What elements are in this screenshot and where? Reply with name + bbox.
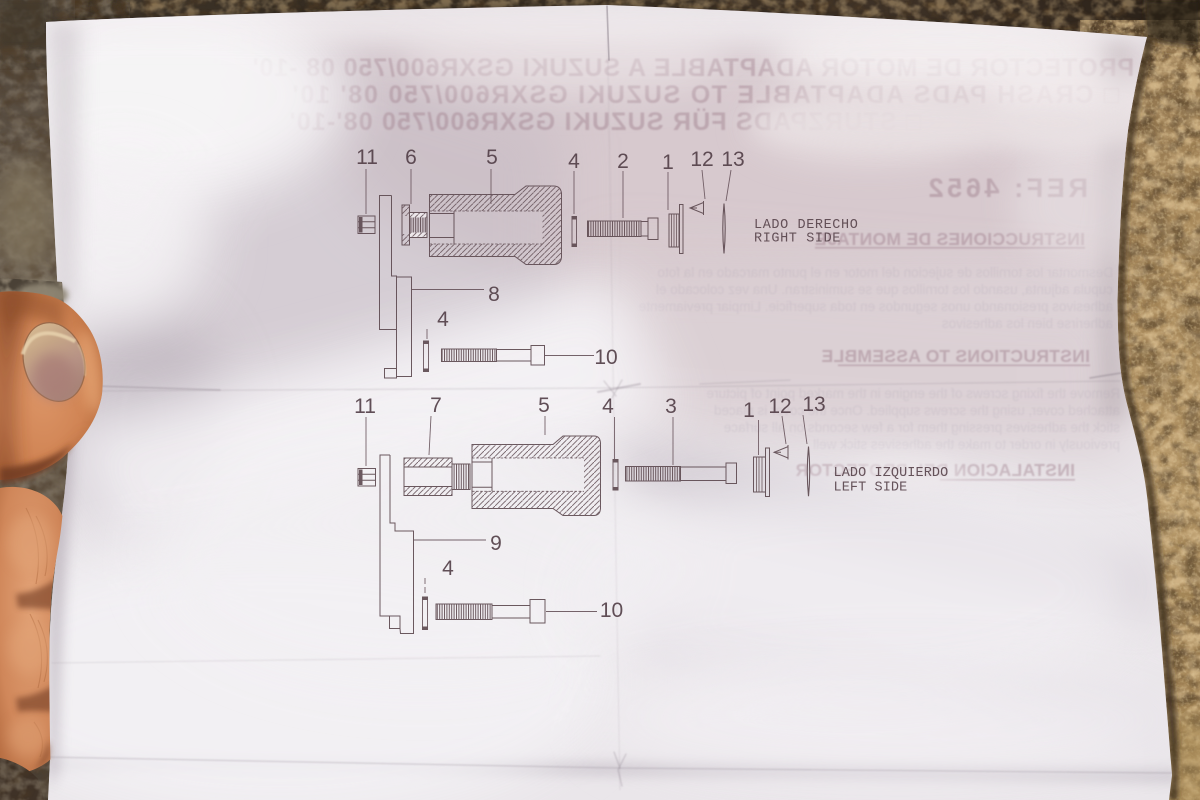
svg-text:4: 4 <box>602 395 614 418</box>
svg-text:RIGHT SIDE: RIGHT SIDE <box>754 232 841 247</box>
svg-text:5: 5 <box>538 394 550 417</box>
svg-text:4: 4 <box>568 150 580 173</box>
svg-text:10: 10 <box>594 346 617 369</box>
svg-text:5: 5 <box>486 146 498 169</box>
svg-text:3: 3 <box>665 395 677 418</box>
svg-text:4: 4 <box>437 308 449 331</box>
svg-text:6: 6 <box>405 146 417 169</box>
svg-text:1: 1 <box>662 151 674 174</box>
svg-text:adherirse bien los adhesivos: adherirse bien los adhesivos <box>942 316 1113 331</box>
svg-text:13: 13 <box>721 148 744 171</box>
svg-text:11: 11 <box>354 395 376 418</box>
svg-text:adhesivos presionando unos seg: adhesivos presionando unos segundos en t… <box>639 299 1113 314</box>
svg-text:7: 7 <box>430 394 442 417</box>
svg-text:previously in order to make th: previously in order to make the adhesive… <box>813 437 1120 452</box>
svg-text:LEFT SIDE: LEFT SIDE <box>834 481 908 496</box>
svg-text:2: 2 <box>617 150 629 173</box>
svg-text:13: 13 <box>802 393 825 416</box>
svg-text:cupula adjunta, usando los tor: cupula adjunta, usando los tornillos que… <box>656 282 1113 297</box>
svg-text:11: 11 <box>356 146 378 169</box>
svg-text:4: 4 <box>442 557 454 580</box>
svg-text:1: 1 <box>743 399 755 422</box>
svg-text:9: 9 <box>490 532 502 555</box>
svg-text:12: 12 <box>690 148 713 171</box>
svg-text:8: 8 <box>488 283 500 306</box>
svg-text:12: 12 <box>768 395 791 418</box>
svg-text:INSTRUCTIONS TO ASSEMBLE: INSTRUCTIONS TO ASSEMBLE <box>821 346 1090 366</box>
svg-text:LADO IZQUIERDO: LADO IZQUIERDO <box>834 466 949 481</box>
svg-text:10: 10 <box>600 599 623 622</box>
svg-text:Desmontar los tornillos de suj: Desmontar los tornillos de sujecion del … <box>658 265 1114 280</box>
